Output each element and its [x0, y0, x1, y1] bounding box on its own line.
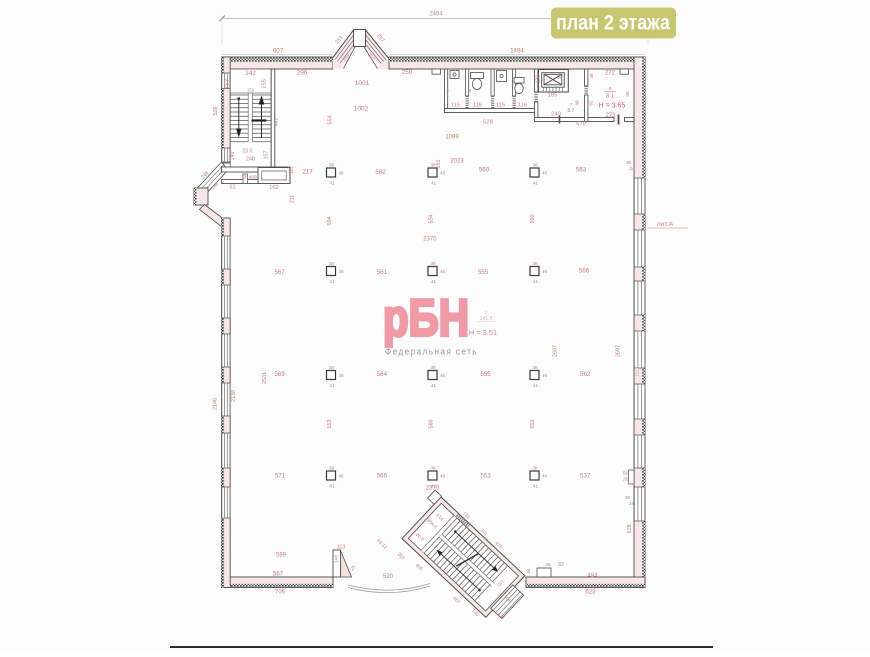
svg-text:46: 46 [339, 373, 345, 378]
svg-text:H = 3.51: H = 3.51 [469, 328, 497, 337]
svg-text:272: 272 [605, 71, 616, 77]
svg-text:41: 41 [533, 484, 539, 489]
svg-text:607: 607 [273, 48, 284, 55]
svg-text:242: 242 [245, 70, 256, 77]
svg-text:1002: 1002 [354, 106, 369, 113]
svg-text:155: 155 [261, 79, 267, 89]
svg-text:211: 211 [289, 195, 295, 204]
svg-text:38: 38 [532, 365, 538, 370]
svg-text:571: 571 [275, 473, 286, 480]
svg-text:112: 112 [288, 166, 294, 174]
svg-text:2138: 2138 [231, 390, 237, 402]
svg-text:38: 38 [532, 465, 538, 470]
svg-text:41: 41 [533, 279, 539, 284]
svg-text:55: 55 [623, 471, 629, 477]
svg-text:51: 51 [230, 185, 236, 191]
svg-text:562: 562 [580, 371, 591, 378]
svg-text:23.5: 23.5 [243, 149, 253, 155]
svg-text:618: 618 [627, 525, 633, 534]
svg-text:8.1: 8.1 [606, 94, 614, 100]
svg-text:24: 24 [629, 501, 635, 506]
svg-text:38: 38 [430, 365, 436, 370]
svg-text:рБН: рБН [383, 290, 469, 348]
svg-text:567: 567 [274, 269, 285, 276]
svg-text:план 2 этажа: план 2 этажа [556, 12, 670, 35]
svg-text:46: 46 [440, 373, 446, 378]
svg-text:41: 41 [329, 383, 335, 388]
svg-text:250: 250 [402, 69, 413, 76]
svg-text:38: 38 [430, 465, 436, 470]
svg-text:46: 46 [440, 474, 446, 479]
svg-text:46: 46 [339, 269, 345, 274]
svg-text:48: 48 [575, 100, 581, 106]
svg-text:82: 82 [558, 562, 564, 568]
svg-text:36: 36 [626, 160, 632, 165]
svg-text:Ø1480: Ø1480 [243, 175, 257, 180]
svg-text:623: 623 [585, 590, 596, 596]
svg-text:564: 564 [377, 371, 388, 378]
svg-text:46: 46 [339, 474, 345, 479]
svg-text:560: 560 [479, 167, 490, 174]
svg-text:153: 153 [225, 79, 231, 89]
svg-text:599: 599 [276, 553, 287, 559]
svg-text:8: 8 [609, 86, 612, 91]
svg-text:2697: 2697 [553, 345, 559, 357]
svg-text:41: 41 [329, 181, 335, 186]
svg-text:38: 38 [430, 261, 436, 266]
svg-text:38: 38 [532, 162, 538, 167]
svg-text:566: 566 [377, 473, 388, 480]
svg-text:38: 38 [329, 162, 335, 167]
svg-text:36: 36 [625, 495, 631, 500]
svg-text:38: 38 [532, 261, 538, 266]
svg-text:240: 240 [551, 112, 561, 118]
svg-text:563: 563 [576, 167, 587, 174]
svg-text:58: 58 [526, 568, 531, 573]
svg-text:566: 566 [429, 419, 435, 428]
svg-text:25: 25 [545, 562, 551, 567]
svg-text:41: 41 [329, 279, 335, 284]
svg-text:41: 41 [431, 279, 437, 284]
svg-text:566: 566 [579, 268, 590, 275]
svg-text:4: 4 [469, 88, 472, 93]
svg-text:555: 555 [480, 371, 491, 378]
svg-text:484: 484 [587, 574, 598, 580]
svg-text:2697: 2697 [616, 345, 622, 357]
svg-text:561: 561 [377, 269, 388, 276]
svg-text:552: 552 [530, 419, 536, 428]
svg-text:217: 217 [302, 169, 313, 176]
svg-text:553: 553 [480, 473, 491, 480]
svg-text:38: 38 [329, 261, 335, 266]
svg-text:115: 115 [496, 103, 505, 109]
svg-text:2146: 2146 [213, 398, 219, 410]
svg-text:185: 185 [548, 93, 558, 99]
svg-text:554: 554 [429, 214, 435, 223]
svg-text:562: 562 [375, 169, 386, 176]
svg-text:38: 38 [329, 465, 335, 470]
svg-text:1001: 1001 [355, 80, 370, 87]
svg-text:554: 554 [328, 115, 334, 124]
svg-text:4: 4 [446, 88, 449, 93]
svg-text:115: 115 [451, 103, 460, 109]
svg-text:46: 46 [440, 171, 446, 176]
svg-text:46: 46 [542, 474, 548, 479]
svg-text:569: 569 [274, 371, 285, 378]
svg-text:46: 46 [339, 171, 345, 176]
svg-text:1111: 1111 [635, 367, 641, 377]
svg-text:553: 553 [327, 419, 333, 428]
svg-text:579: 579 [576, 122, 586, 128]
svg-text:520: 520 [383, 574, 394, 580]
svg-text:162: 162 [269, 185, 279, 191]
svg-text:1494: 1494 [510, 47, 524, 54]
svg-text:567: 567 [273, 572, 284, 578]
svg-text:526: 526 [213, 106, 219, 115]
svg-text:447: 447 [274, 117, 280, 126]
svg-text:2531: 2531 [262, 372, 268, 384]
svg-text:46: 46 [589, 73, 595, 79]
svg-text:Федеральная сеть: Федеральная сеть [385, 347, 478, 357]
svg-text:113: 113 [337, 545, 346, 551]
svg-text:62: 62 [589, 100, 595, 106]
svg-text:46: 46 [542, 171, 548, 176]
svg-text:41: 41 [533, 181, 539, 186]
svg-text:550: 550 [530, 214, 536, 223]
svg-text:41: 41 [533, 383, 539, 388]
svg-text:41: 41 [431, 383, 437, 388]
svg-text:25: 25 [623, 477, 629, 483]
svg-text:46: 46 [542, 269, 548, 274]
svg-text:38: 38 [430, 162, 436, 167]
svg-text:46: 46 [542, 373, 548, 378]
svg-text:296: 296 [297, 70, 308, 77]
svg-text:38: 38 [329, 365, 335, 370]
svg-text:240: 240 [246, 157, 255, 163]
svg-text:1099: 1099 [445, 135, 459, 141]
svg-text:24: 24 [629, 166, 635, 171]
svg-text:148: 148 [334, 555, 340, 563]
svg-text:96: 96 [557, 73, 563, 79]
svg-text:273: 273 [605, 113, 616, 119]
svg-text:116: 116 [518, 103, 527, 109]
svg-text:41: 41 [431, 181, 437, 186]
svg-text:554: 554 [327, 216, 333, 225]
svg-text:159: 159 [247, 88, 255, 93]
svg-text:2023: 2023 [450, 159, 464, 165]
svg-text:лит.А: лит.А [657, 221, 674, 228]
svg-text:5.7: 5.7 [568, 108, 575, 114]
svg-text:706: 706 [275, 590, 286, 596]
svg-text:H = 3.65: H = 3.65 [599, 103, 626, 110]
svg-text:141.8: 141.8 [480, 316, 493, 322]
svg-text:537: 537 [580, 473, 591, 480]
svg-text:149: 149 [230, 152, 236, 161]
svg-text:157: 157 [264, 151, 270, 160]
svg-text:528: 528 [483, 120, 493, 126]
svg-text:95: 95 [625, 91, 631, 97]
svg-text:116: 116 [473, 103, 482, 109]
svg-text:41: 41 [329, 484, 335, 489]
svg-text:130: 130 [536, 75, 542, 84]
svg-text:2370: 2370 [423, 237, 437, 243]
svg-text:551: 551 [436, 159, 442, 168]
svg-text:555: 555 [478, 269, 489, 276]
svg-text:2494: 2494 [429, 12, 443, 18]
svg-text:2370: 2370 [426, 486, 440, 492]
svg-text:46: 46 [440, 269, 446, 274]
